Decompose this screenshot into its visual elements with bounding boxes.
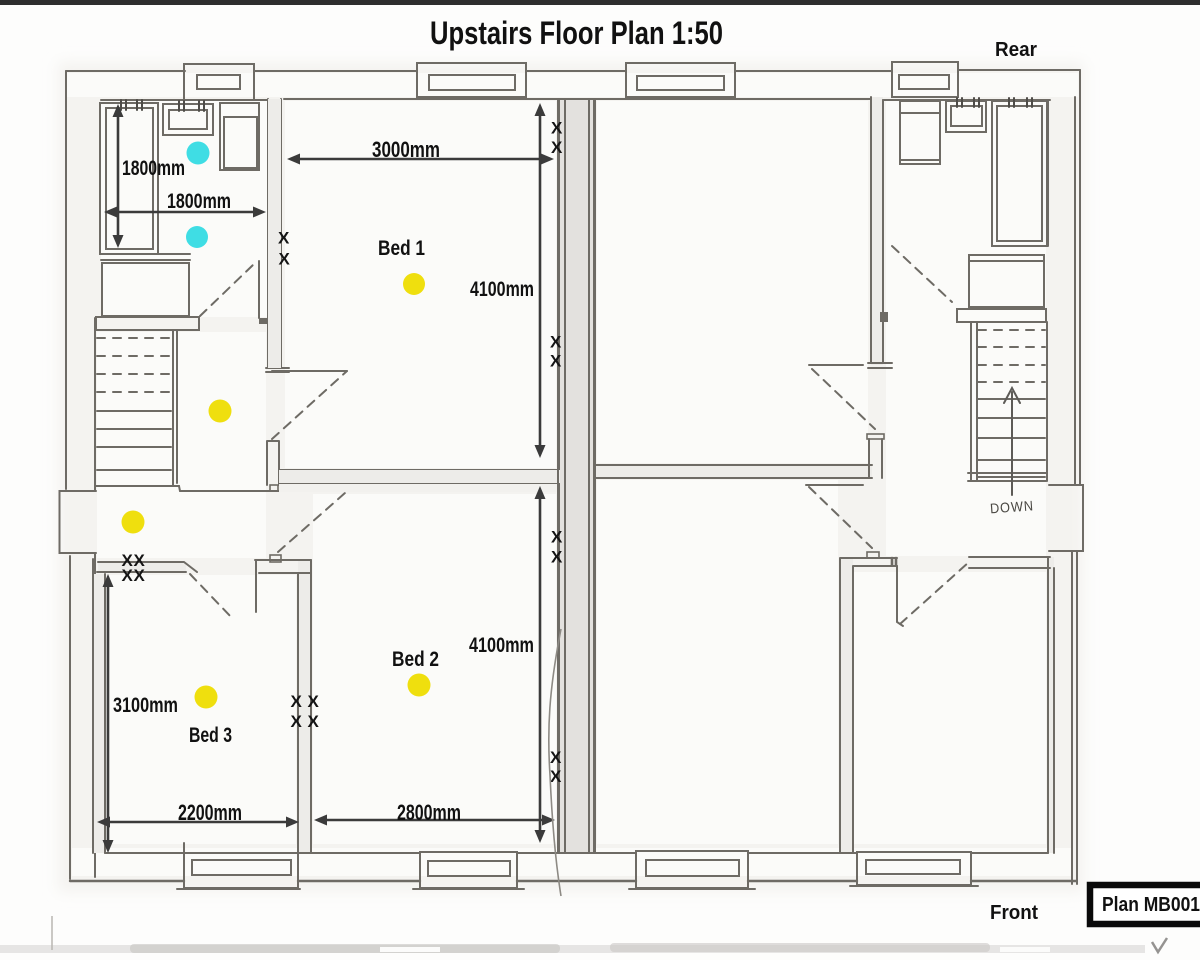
svg-text:X: X (551, 138, 563, 157)
svg-text:X: X (551, 548, 563, 567)
svg-text:Front: Front (990, 902, 1038, 924)
svg-text:X: X (291, 692, 303, 711)
svg-text:X: X (550, 748, 562, 767)
svg-text:X: X (134, 566, 146, 585)
svg-text:X: X (122, 566, 134, 585)
svg-text:X: X (308, 712, 320, 731)
svg-text:4100mm: 4100mm (470, 278, 534, 301)
svg-text:Upstairs Floor Plan 1:50: Upstairs Floor Plan 1:50 (430, 15, 723, 51)
svg-text:3100mm: 3100mm (113, 694, 178, 717)
svg-text:X: X (279, 250, 291, 269)
svg-text:X: X (550, 767, 562, 786)
svg-text:X: X (291, 712, 303, 731)
svg-text:4100mm: 4100mm (469, 634, 534, 657)
svg-text:2800mm: 2800mm (397, 800, 461, 825)
svg-text:Plan MB001: Plan MB001 (1102, 894, 1200, 916)
svg-text:Bed 2: Bed 2 (392, 648, 439, 671)
svg-text:1800mm: 1800mm (167, 190, 231, 213)
svg-text:1800mm: 1800mm (122, 157, 185, 180)
svg-text:X: X (550, 352, 562, 371)
svg-text:X: X (308, 692, 320, 711)
svg-text:2200mm: 2200mm (178, 800, 242, 825)
svg-text:Rear: Rear (995, 39, 1037, 61)
svg-text:X: X (550, 333, 562, 352)
svg-text:Bed 3: Bed 3 (189, 724, 232, 747)
svg-text:DOWN: DOWN (989, 497, 1034, 516)
svg-text:X: X (278, 229, 290, 248)
svg-text:3000mm: 3000mm (372, 137, 440, 162)
svg-text:Bed 1: Bed 1 (378, 237, 425, 260)
svg-text:X: X (551, 119, 563, 138)
svg-text:X: X (551, 528, 563, 547)
